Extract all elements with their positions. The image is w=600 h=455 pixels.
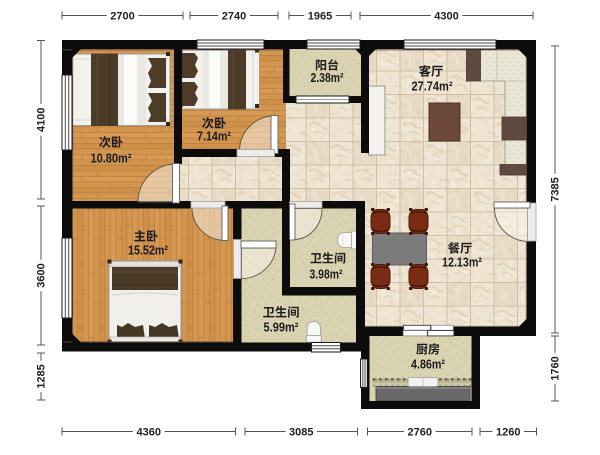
svg-text:1260: 1260 <box>496 426 520 438</box>
svg-text:7385: 7385 <box>550 177 562 201</box>
svg-text:3600: 3600 <box>36 263 48 287</box>
svg-text:12.13m²: 12.13m² <box>442 255 483 270</box>
svg-text:2.38m²: 2.38m² <box>311 71 344 85</box>
svg-text:4100: 4100 <box>36 108 48 132</box>
svg-text:3085: 3085 <box>289 426 313 438</box>
svg-text:2760: 2760 <box>408 426 432 438</box>
svg-text:4.86m²: 4.86m² <box>411 357 445 371</box>
svg-text:3.98m²: 3.98m² <box>310 267 343 281</box>
svg-text:2740: 2740 <box>222 10 246 22</box>
svg-text:4360: 4360 <box>137 426 161 438</box>
svg-text:7.14m²: 7.14m² <box>197 129 231 143</box>
svg-text:27.74m²: 27.74m² <box>412 79 454 94</box>
svg-text:1285: 1285 <box>36 364 48 388</box>
svg-text:1760: 1760 <box>550 356 562 380</box>
svg-text:4300: 4300 <box>434 10 458 22</box>
svg-text:10.80m²: 10.80m² <box>91 151 133 166</box>
svg-text:15.52m²: 15.52m² <box>128 243 169 258</box>
svg-text:2700: 2700 <box>110 10 134 22</box>
svg-text:1965: 1965 <box>308 10 332 22</box>
svg-text:5.99m²: 5.99m² <box>264 320 300 335</box>
